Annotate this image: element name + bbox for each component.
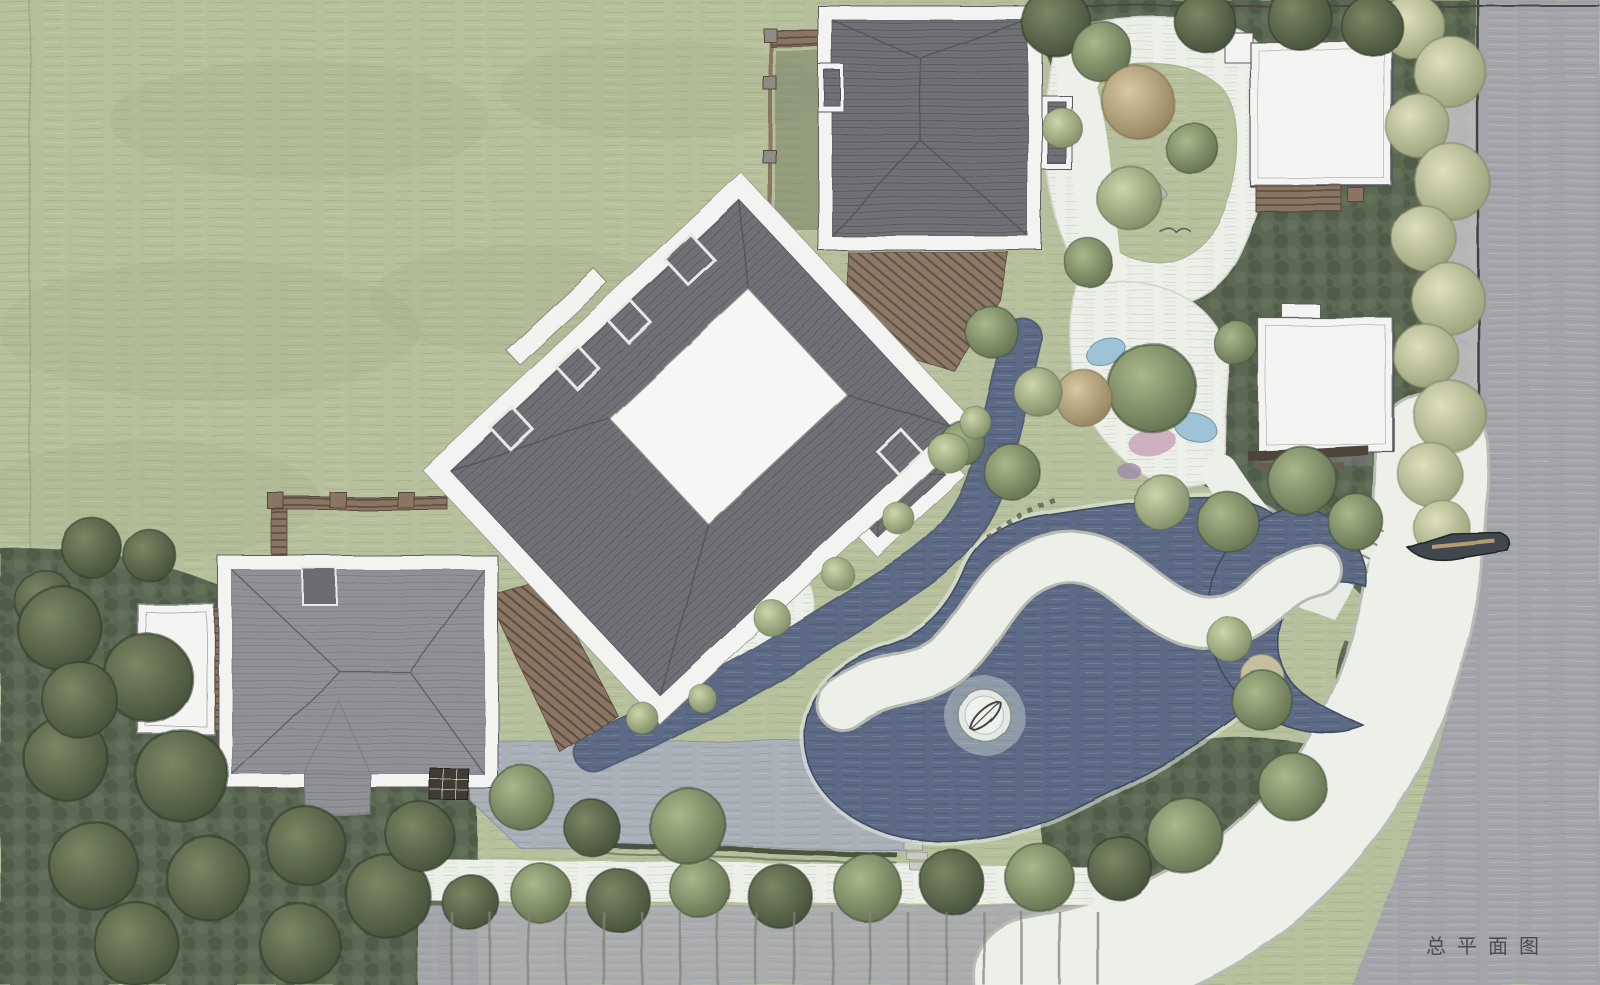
tree (386, 802, 454, 870)
tree (1006, 844, 1074, 912)
tree (1108, 344, 1196, 432)
tree (1414, 380, 1486, 452)
tree (748, 864, 812, 928)
tree (1175, 0, 1235, 52)
tree (920, 850, 984, 914)
tree (166, 836, 250, 920)
tree (260, 904, 340, 984)
tree (966, 306, 1018, 358)
tree (62, 518, 122, 578)
tree (1342, 0, 1402, 56)
tree (1102, 66, 1174, 138)
tree (754, 600, 790, 636)
garden-pavilion-east (1248, 304, 1394, 468)
tree (586, 868, 650, 932)
tree (1134, 474, 1190, 530)
tree (1014, 368, 1062, 416)
tree (1166, 122, 1218, 174)
tree (1208, 618, 1252, 662)
pond-island (945, 676, 1025, 756)
tree (1198, 492, 1258, 552)
site-plan-drawing (0, 0, 1600, 985)
tree (1394, 324, 1458, 388)
tree (266, 806, 346, 886)
skylight-grid (430, 768, 468, 800)
tree (1088, 836, 1152, 900)
tree (1042, 108, 1082, 148)
tree (1056, 370, 1112, 426)
tree (564, 800, 620, 856)
tree (1064, 238, 1112, 286)
tree (1328, 494, 1384, 550)
tree (1398, 442, 1462, 506)
tree (834, 854, 902, 922)
plan-caption: 总平面图 (1426, 930, 1550, 959)
tree (1232, 670, 1292, 730)
tree (490, 766, 554, 830)
tree (984, 444, 1040, 500)
tree (882, 502, 914, 534)
pavilion-deck (1256, 186, 1342, 212)
site-plan-canvas: 总平面图 (0, 0, 1600, 985)
tree (1268, 446, 1336, 514)
tree (928, 432, 968, 472)
tree (50, 822, 138, 910)
tree (1392, 206, 1456, 270)
tree (670, 858, 730, 918)
pergola-north (763, 28, 820, 230)
tree (650, 788, 726, 864)
tree (42, 662, 118, 738)
tree (822, 558, 854, 590)
tree (94, 902, 178, 985)
tree (510, 862, 570, 922)
tree (18, 586, 102, 670)
tree (688, 684, 716, 712)
tree (1147, 798, 1223, 874)
tree (1098, 166, 1162, 230)
tree (959, 406, 991, 438)
tree (136, 730, 228, 822)
tree (626, 702, 658, 734)
tree (1258, 752, 1326, 820)
west-villa-chimney (302, 568, 336, 604)
tree (124, 530, 176, 582)
tree (1213, 320, 1257, 364)
